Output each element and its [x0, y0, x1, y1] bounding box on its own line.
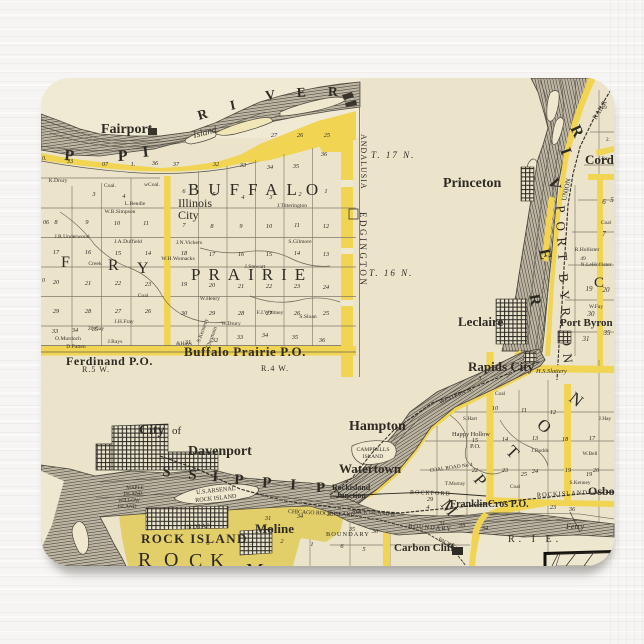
svg-text:36: 36: [354, 509, 362, 516]
svg-text:&Hays: &Hays: [176, 341, 192, 347]
svg-text:Rapids City: Rapids City: [468, 359, 535, 374]
svg-text:O.Murdoch: O.Murdoch: [55, 336, 81, 342]
svg-text:2.: 2.: [606, 137, 611, 143]
svg-text:19: 19: [565, 467, 572, 474]
svg-text:City: City: [178, 208, 199, 222]
svg-text:29: 29: [53, 308, 60, 315]
svg-text:20: 20: [603, 286, 611, 294]
svg-text:ISLAND: ISLAND: [117, 504, 136, 510]
svg-text:D.Patten: D.Patten: [66, 344, 86, 350]
svg-text:EDGINGTON: EDGINGTON: [358, 212, 368, 287]
svg-text:wCoal.: wCoal.: [144, 182, 161, 188]
svg-text:17: 17: [589, 435, 596, 442]
svg-text:10: 10: [114, 220, 121, 227]
svg-text:ROCK ISLAND: ROCK ISLAND: [141, 531, 248, 546]
svg-text:49: 49: [580, 256, 586, 262]
svg-text:23: 23: [502, 467, 508, 474]
svg-text:Creek: Creek: [88, 261, 102, 267]
svg-text:1: 1: [310, 541, 313, 548]
svg-text:5: 5: [212, 191, 215, 198]
svg-text:21: 21: [238, 283, 244, 290]
svg-text:1: 1: [324, 188, 327, 195]
svg-text:Moline: Moline: [255, 521, 294, 536]
svg-text:11: 11: [143, 220, 149, 227]
svg-text:14: 14: [502, 436, 508, 443]
svg-text:36: 36: [151, 160, 159, 167]
svg-text:34: 34: [261, 332, 268, 339]
svg-text:J.Hay: J.Hay: [599, 416, 612, 422]
svg-text:36: 36: [320, 151, 328, 158]
svg-text:25: 25: [521, 471, 527, 478]
svg-text:19: 19: [586, 285, 594, 293]
svg-text:S: S: [162, 464, 171, 481]
svg-text:3: 3: [268, 194, 272, 201]
svg-text:W.B.Simpson: W.B.Simpson: [105, 209, 136, 215]
svg-text:R: R: [108, 257, 119, 274]
svg-text:F.J.Whitney: F.J.Whitney: [257, 310, 284, 316]
svg-text:Fairport: Fairport: [101, 122, 153, 137]
svg-text:20: 20: [209, 282, 216, 289]
svg-text:31: 31: [582, 335, 590, 343]
svg-text:J.Stewart: J.Stewart: [245, 264, 266, 270]
svg-text:O: O: [553, 221, 569, 232]
svg-text:13: 13: [532, 435, 538, 442]
svg-text:S.Kenney: S.Kenney: [569, 480, 590, 486]
svg-text:ANDALUSIA: ANDALUSIA: [359, 134, 368, 190]
svg-text:14: 14: [145, 250, 151, 257]
svg-text:25: 25: [324, 132, 330, 139]
svg-text:11: 11: [521, 407, 527, 414]
svg-text:Princeton: Princeton: [443, 176, 502, 191]
svg-text:17: 17: [209, 251, 216, 258]
svg-text:Coal: Coal: [138, 293, 149, 299]
svg-text:R.4 W.: R.4 W.: [261, 364, 289, 373]
svg-text:T.Murray: T.Murray: [445, 481, 466, 487]
svg-text:R: R: [328, 84, 338, 99]
svg-text:R.5 W.: R.5 W.: [82, 365, 110, 374]
svg-text:34: 34: [71, 327, 78, 334]
svg-text:33: 33: [66, 158, 73, 165]
svg-text:W.Bell: W.Bell: [583, 451, 598, 457]
svg-text:35: 35: [348, 526, 355, 533]
svg-text:Coal: Coal: [495, 391, 506, 397]
svg-text:12: 12: [323, 223, 330, 230]
svg-text:City: City: [139, 423, 165, 438]
svg-text:19: 19: [586, 471, 593, 478]
svg-text:10: 10: [492, 405, 499, 412]
svg-text:26: 26: [145, 308, 152, 315]
svg-text:3: 3: [249, 540, 253, 547]
svg-text:I: I: [290, 477, 297, 493]
svg-text:Coal: Coal: [601, 220, 612, 226]
svg-text:14: 14: [294, 250, 300, 257]
svg-text:P: P: [234, 472, 244, 489]
svg-text:R. I E.: R. I E.: [508, 534, 562, 545]
svg-text:J.A.Duffield: J.A.Duffield: [114, 238, 142, 245]
svg-text:30: 30: [587, 310, 596, 318]
svg-text:F: F: [61, 254, 70, 271]
svg-text:S: S: [188, 467, 197, 484]
svg-text:34: 34: [266, 164, 273, 171]
svg-text:33: 33: [458, 522, 465, 529]
svg-text:5: 5: [610, 196, 614, 204]
svg-text:07: 07: [102, 161, 109, 168]
svg-text:W.Henry: W.Henry: [200, 296, 220, 302]
svg-text:35: 35: [292, 163, 299, 170]
svg-text:5: 5: [362, 546, 365, 553]
svg-text:J.N.Vickers: J.N.Vickers: [176, 240, 202, 246]
svg-text:Port Byron: Port Byron: [560, 317, 613, 329]
svg-text:20: 20: [53, 279, 60, 286]
svg-text:S.Gilmore: S.Gilmore: [288, 239, 312, 245]
svg-text:27: 27: [271, 132, 278, 139]
svg-text:26: 26: [297, 132, 304, 139]
svg-text:34: 34: [296, 513, 303, 520]
svg-text:33: 33: [236, 334, 243, 341]
svg-text:32: 32: [212, 161, 220, 168]
svg-text:16: 16: [238, 251, 245, 258]
svg-text:4: 4: [426, 504, 429, 511]
svg-text:37: 37: [172, 161, 180, 168]
svg-text:R.Hollister: R.Hollister: [575, 247, 600, 253]
svg-text:K.Drury: K.Drury: [49, 178, 68, 184]
svg-text:22: 22: [115, 280, 122, 287]
svg-text:15: 15: [266, 251, 272, 258]
svg-text:T. 16 N.: T. 16 N.: [369, 268, 413, 278]
svg-text:W.H.Womacks: W.H.Womacks: [161, 256, 195, 262]
svg-text:22: 22: [472, 467, 479, 474]
svg-text:S.Sloan: S.Sloan: [299, 314, 316, 320]
svg-text:Ferry: Ferry: [565, 522, 585, 531]
svg-text:30: 30: [180, 310, 188, 317]
svg-text:L.Bendle: L.Bendle: [125, 201, 146, 207]
svg-text:12: 12: [550, 409, 557, 416]
svg-text:Carbon Cliff: Carbon Cliff: [394, 542, 455, 554]
svg-text:of: of: [172, 425, 182, 437]
svg-text:P: P: [316, 480, 325, 496]
svg-text:N.LeHollister: N.LeHollister: [581, 262, 612, 268]
svg-text:18: 18: [562, 436, 569, 443]
svg-text:35: 35: [603, 329, 612, 337]
svg-text:13: 13: [323, 251, 329, 258]
svg-text:1.: 1.: [131, 161, 136, 168]
svg-text:17: 17: [53, 249, 60, 256]
svg-text:16: 16: [85, 249, 92, 256]
svg-text:T. 17 N.: T. 17 N.: [371, 150, 415, 160]
svg-text:23: 23: [294, 283, 300, 290]
svg-text:06: 06: [43, 220, 49, 226]
svg-text:24: 24: [532, 468, 538, 475]
svg-text:29: 29: [427, 496, 434, 503]
svg-text:7: 7: [602, 230, 606, 238]
svg-text:Watertown: Watertown: [339, 461, 402, 476]
svg-text:22: 22: [266, 283, 273, 290]
svg-text:P: P: [118, 148, 129, 165]
svg-text:J.Rays: J.Rays: [108, 339, 123, 345]
svg-text:23: 23: [145, 281, 151, 288]
svg-text:15: 15: [115, 250, 121, 257]
svg-text:4: 4: [241, 194, 244, 201]
svg-text:J.H.Fray: J.H.Fray: [114, 319, 133, 325]
svg-text:28: 28: [85, 308, 92, 315]
svg-text:J.Titterington: J.Titterington: [277, 203, 307, 209]
svg-text:24: 24: [323, 284, 329, 291]
svg-text:Leclaire: Leclaire: [458, 314, 503, 329]
svg-text:15: 15: [472, 437, 478, 444]
svg-text:34: 34: [481, 525, 488, 532]
svg-text:33: 33: [239, 162, 246, 169]
svg-text:J.Ray: J.Ray: [598, 156, 610, 162]
svg-text:19: 19: [601, 105, 607, 111]
svg-text:31: 31: [438, 520, 445, 527]
svg-text:P: P: [262, 475, 272, 491]
svg-text:ISLAND: ISLAND: [363, 454, 384, 460]
svg-text:ISLAND: ISLAND: [123, 491, 142, 497]
svg-text:3: 3: [91, 191, 95, 198]
svg-text:Buffalo Prairie P.O.: Buffalo Prairie P.O.: [184, 344, 306, 359]
svg-text:FranklinCros P.O.: FranklinCros P.O.: [450, 499, 529, 510]
svg-text:T: T: [555, 252, 571, 262]
svg-text:H.S.Slattery: H.S.Slattery: [535, 368, 567, 375]
svg-text:Coal: Coal: [510, 484, 521, 490]
svg-text:Junction: Junction: [336, 491, 366, 500]
svg-text:21: 21: [85, 280, 91, 287]
svg-text:Davenport: Davenport: [188, 444, 252, 459]
svg-text:36: 36: [371, 528, 379, 535]
svg-text:36: 36: [568, 506, 576, 513]
svg-text:3: 3: [477, 375, 481, 382]
svg-text:0: 0: [42, 278, 45, 284]
svg-text:0.: 0.: [42, 156, 47, 162]
svg-text:J.R.Underwood: J.R.Underwood: [54, 234, 89, 240]
svg-text:19: 19: [181, 281, 188, 288]
svg-text:10: 10: [266, 223, 273, 230]
svg-text:4: 4: [122, 193, 125, 200]
svg-text:28: 28: [238, 310, 245, 317]
svg-text:Y: Y: [137, 260, 149, 277]
svg-text:Hampton: Hampton: [349, 419, 406, 434]
svg-text:Coal.: Coal.: [104, 183, 117, 189]
svg-text:36: 36: [318, 337, 326, 344]
svg-text:29: 29: [209, 310, 216, 317]
svg-text:Osbor: Osbor: [588, 484, 621, 498]
svg-text:20 Gay: 20 Gay: [88, 326, 105, 332]
svg-text:35: 35: [291, 334, 298, 341]
svg-text:6: 6: [602, 198, 606, 206]
svg-text:23: 23: [550, 504, 556, 511]
svg-text:S.Hart: S.Hart: [463, 416, 477, 422]
svg-text:27: 27: [115, 308, 122, 315]
svg-text:P.O.: P.O.: [470, 443, 481, 450]
svg-text:31: 31: [264, 515, 271, 522]
svg-text:11: 11: [294, 222, 300, 229]
svg-text:35: 35: [326, 511, 333, 518]
svg-text:25: 25: [323, 310, 329, 317]
svg-text:E: E: [296, 85, 306, 100]
svg-text:W.Drury: W.Drury: [221, 321, 241, 327]
svg-text:20: 20: [593, 467, 600, 474]
svg-text:33: 33: [51, 328, 58, 335]
